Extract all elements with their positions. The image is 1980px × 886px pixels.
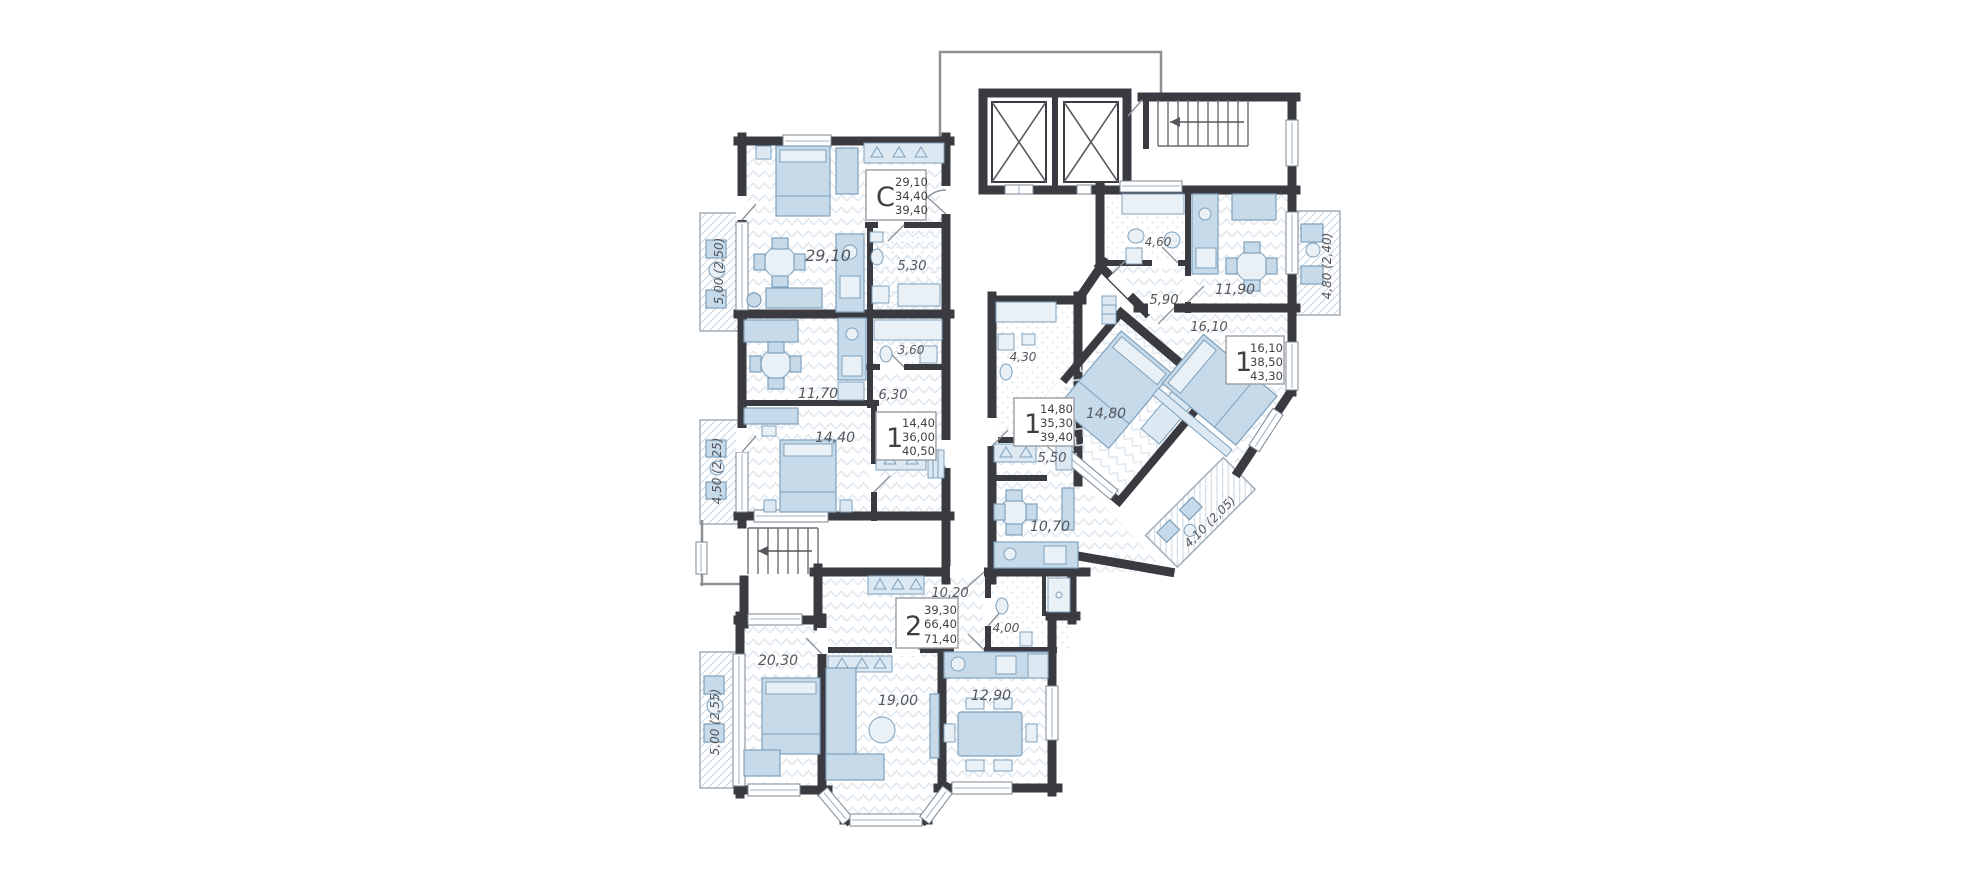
washing-machine xyxy=(872,286,889,303)
stove xyxy=(842,356,862,376)
washing-machine xyxy=(998,334,1014,350)
chair xyxy=(1006,490,1022,501)
apartment-area-value: 39,30 xyxy=(924,603,957,617)
desk xyxy=(744,408,798,424)
toilet xyxy=(880,346,892,362)
sink xyxy=(1020,632,1032,646)
chair xyxy=(772,276,788,287)
shower-tub xyxy=(898,284,940,306)
chair xyxy=(794,254,805,270)
balcony-left-middle: 4,50 (2,25) xyxy=(700,420,740,524)
chair xyxy=(966,760,984,771)
chair xyxy=(1026,724,1037,742)
apartment-area-value: 40,50 xyxy=(902,444,935,458)
stove xyxy=(1196,248,1216,268)
chair xyxy=(994,504,1005,520)
toilet xyxy=(1000,364,1012,380)
washing-machine xyxy=(1126,248,1142,264)
apartment-area-value: 14,40 xyxy=(902,416,935,430)
apartment-card-center: 1 14,80 35,30 39,40 xyxy=(1014,398,1074,446)
room-area-label: 14,80 xyxy=(1086,406,1126,422)
apartment-area-value: 29,10 xyxy=(895,175,928,189)
room-area-label: 4,00 xyxy=(993,621,1020,635)
apartment-card-right: 1 16,10 38,50 43,30 xyxy=(1226,336,1284,384)
room-area-label: 4,60 xyxy=(1145,235,1172,249)
bathtub xyxy=(996,302,1056,322)
stairs-top xyxy=(1158,100,1248,146)
kitchen-sink xyxy=(1004,548,1016,560)
room-area-label: 19,00 xyxy=(878,693,918,709)
room-area-label: 14,40 xyxy=(815,430,855,446)
balcony-area-label: 4,80 (2,40) xyxy=(1320,233,1334,300)
room-area-label: 3,60 xyxy=(898,343,925,357)
sofa xyxy=(766,288,822,308)
stairs-left xyxy=(748,528,818,574)
nightstand xyxy=(764,500,776,512)
chair xyxy=(790,356,801,372)
balcony-left-bottom: 5,00 (2,55) xyxy=(700,652,738,788)
dresser xyxy=(744,750,780,776)
chair xyxy=(772,238,788,249)
apartment-area-value: 38,50 xyxy=(1250,355,1283,369)
balcony-table xyxy=(1306,243,1320,257)
bed-pillow xyxy=(766,682,816,694)
chair xyxy=(994,760,1012,771)
room-area-label: 20,30 xyxy=(758,653,798,669)
apartment-card-left: 1 14,40 36,00 40,50 xyxy=(876,412,936,460)
apartment-area-value: 43,30 xyxy=(1250,369,1283,383)
chair xyxy=(1006,524,1022,535)
stove xyxy=(1044,546,1066,564)
fridge xyxy=(1028,654,1048,678)
chair xyxy=(768,342,784,353)
apartment-area-value: 14,80 xyxy=(1040,402,1073,416)
chair xyxy=(944,724,955,742)
apartment-area-value: 16,10 xyxy=(1250,341,1283,355)
room-area-label: 4,30 xyxy=(1010,350,1037,364)
sink xyxy=(1022,334,1035,345)
apartment-type: C xyxy=(876,182,895,213)
apartment-area-value: 71,40 xyxy=(924,632,957,646)
nightstand xyxy=(840,500,852,512)
stove xyxy=(840,276,860,298)
apartment-type: 1 xyxy=(1024,409,1041,440)
room-area-label: 29,10 xyxy=(805,246,851,265)
room-area-label: 11,90 xyxy=(1215,282,1255,298)
room-area-label: 10,70 xyxy=(1030,519,1070,535)
bathtub xyxy=(1122,194,1184,214)
apartment-card-studio: C 29,10 34,40 39,40 xyxy=(866,170,928,220)
room-area-label: 11,70 xyxy=(798,386,838,402)
kitchen-sink xyxy=(951,657,965,671)
chair xyxy=(754,254,765,270)
sink xyxy=(870,232,883,242)
sofa-chaise xyxy=(826,754,884,780)
kitchen-sink xyxy=(1199,208,1211,220)
room-area-label: 5,30 xyxy=(898,259,927,274)
toilet xyxy=(1128,229,1144,243)
toilet xyxy=(871,249,883,265)
apartment-type: 1 xyxy=(886,423,903,454)
shelving-unit xyxy=(1102,296,1116,324)
dining-table xyxy=(764,246,796,278)
floor-plan-svg: 5,00 (2,50) 4,50 (2,25) 5,00 (2,55) 4,80… xyxy=(0,0,1980,886)
toilet xyxy=(996,598,1008,614)
room-area-label: 5,50 xyxy=(1038,451,1067,466)
balcony-area-label: 5,00 (2,50) xyxy=(712,238,726,305)
chair xyxy=(768,378,784,389)
dining-table xyxy=(958,712,1022,756)
apartment-card-bottom: 2 39,30 66,40 71,40 xyxy=(896,598,958,648)
room-area-label: 16,10 xyxy=(1190,320,1227,335)
room-area-label: 6,30 xyxy=(879,388,908,403)
tv-stand xyxy=(930,694,939,758)
chair xyxy=(1026,504,1037,520)
coffee-table xyxy=(869,717,895,743)
wardrobe-rack xyxy=(864,143,944,163)
apartment-area-value: 39,40 xyxy=(1040,430,1073,444)
chair xyxy=(1226,258,1237,274)
tv-dresser xyxy=(836,148,858,194)
plant xyxy=(747,293,761,307)
balcony-right-top: 4,80 (2,40) xyxy=(1296,211,1340,315)
apartment-area-value: 35,30 xyxy=(1040,416,1073,430)
floor-plan-page: 5,00 (2,50) 4,50 (2,25) 5,00 (2,55) 4,80… xyxy=(0,0,1980,886)
fridge xyxy=(838,382,864,400)
chair xyxy=(750,356,761,372)
kitchen-sink xyxy=(846,328,858,340)
apartment-area-value: 36,00 xyxy=(902,430,935,444)
chair xyxy=(1244,242,1260,253)
sofa xyxy=(744,320,798,342)
apartment-type: 2 xyxy=(905,611,922,642)
dining-table xyxy=(1236,250,1268,282)
armchair xyxy=(1232,194,1276,220)
stove xyxy=(996,656,1016,674)
balcony-area-label: 5,00 (2,55) xyxy=(708,689,722,756)
room-area-label: 5,90 xyxy=(1150,293,1179,308)
bed-pillow xyxy=(780,150,826,162)
bathtub xyxy=(874,320,942,340)
chair xyxy=(1266,258,1277,274)
sofa xyxy=(826,668,856,764)
shower xyxy=(1048,578,1070,612)
balcony-area-label: 4,50 (2,25) xyxy=(710,438,724,505)
apartment-area-value: 66,40 xyxy=(924,617,957,631)
room-area-label: 12,90 xyxy=(971,688,1011,704)
nightstand xyxy=(756,146,771,159)
apartment-area-value: 34,40 xyxy=(895,189,928,203)
chair xyxy=(762,426,776,436)
apartment-area-value: 39,40 xyxy=(895,203,928,217)
